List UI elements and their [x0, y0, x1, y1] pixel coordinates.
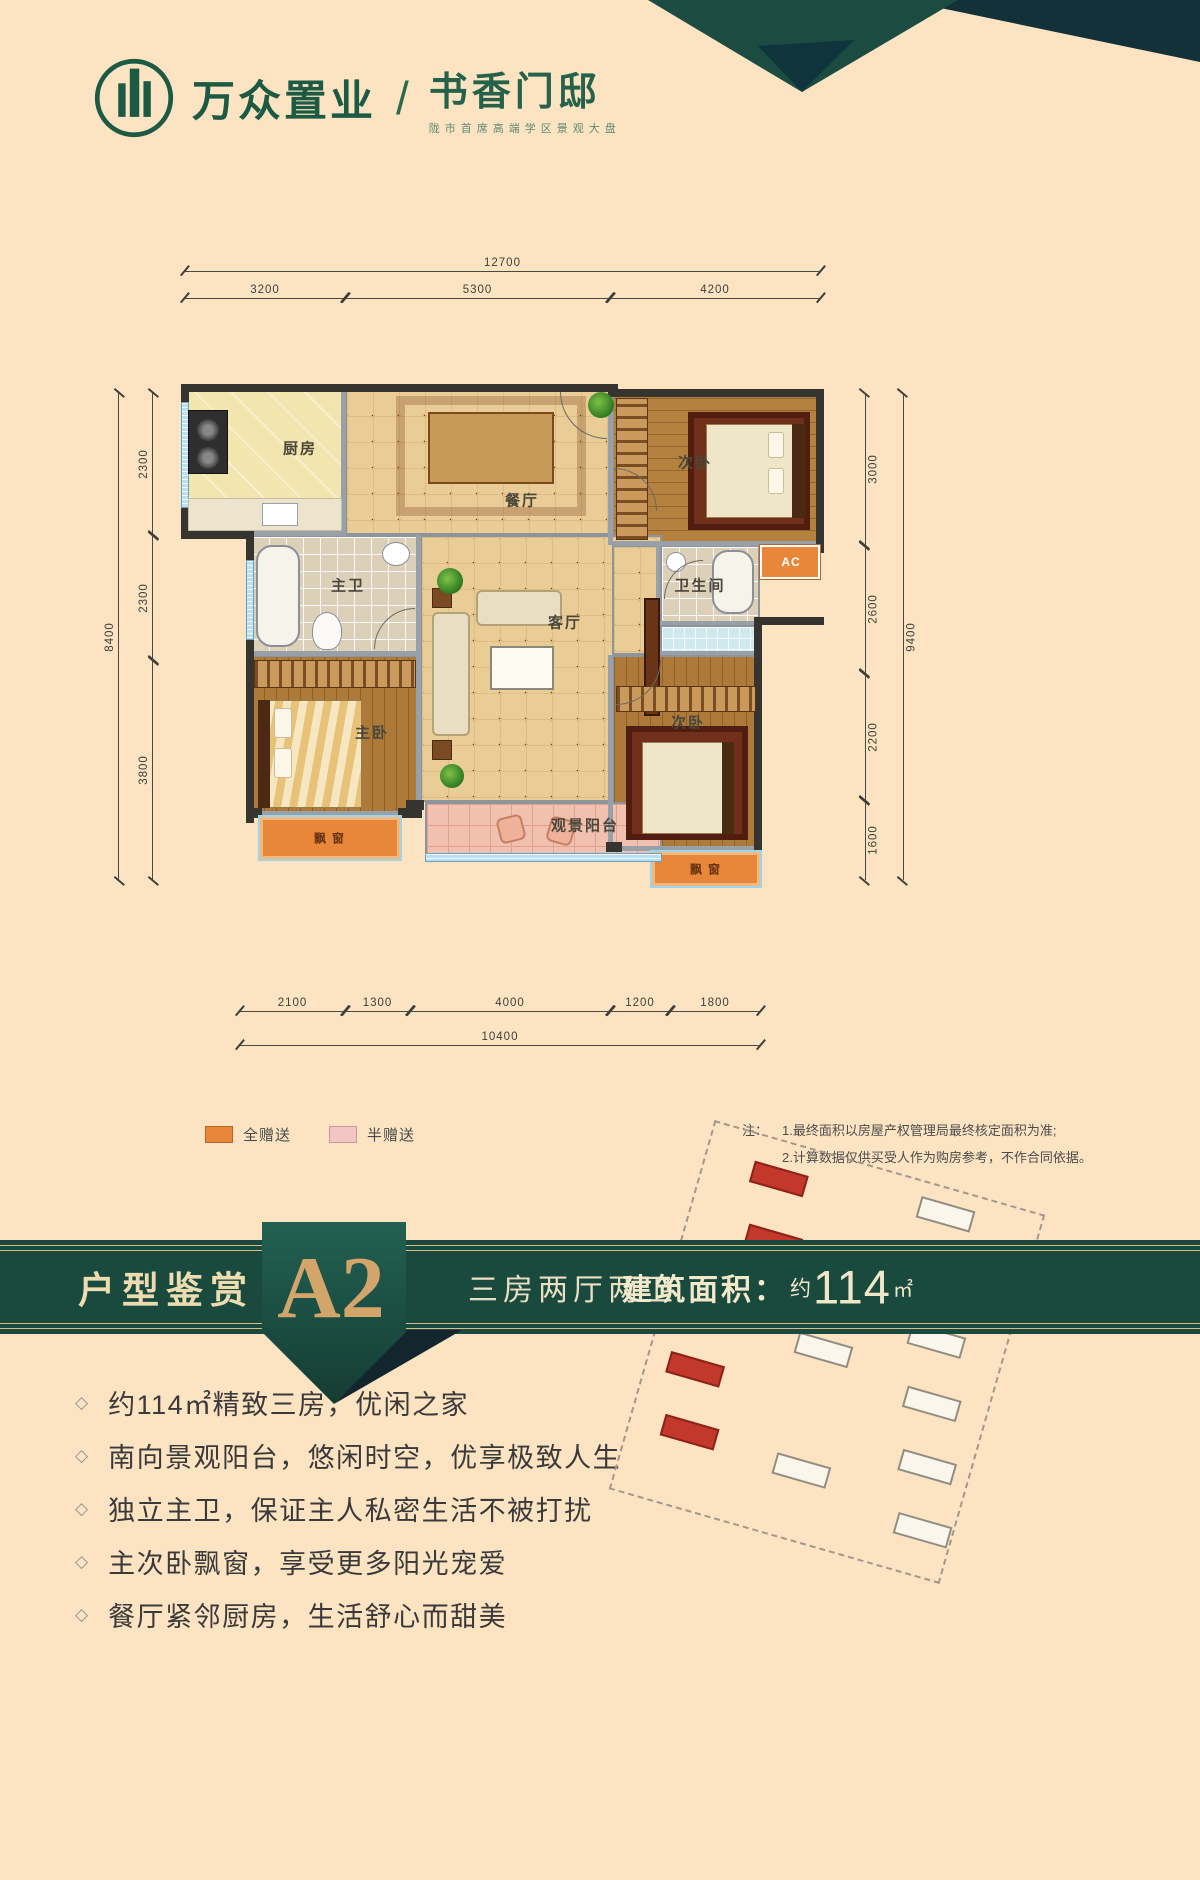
label-dining: 餐厅	[505, 490, 539, 511]
burner	[197, 419, 219, 441]
dim-bottom-seg: 1800	[670, 996, 760, 1012]
dim-bottom-seg: 1300	[345, 996, 410, 1012]
half-gift-label: 半赠送	[367, 1124, 415, 1145]
brand-project-name: 书香门邸	[429, 61, 621, 117]
dim-right-total: 9400	[888, 393, 904, 880]
brand-tagline: 陇市首席高端学区景观大盘	[429, 120, 621, 136]
pillow	[274, 748, 292, 778]
diamond-bullet-icon: ◇	[75, 1393, 88, 1413]
feature-list: ◇ 约114㎡精致三房，优闲之家 ◇ 南向景观阳台，悠闲时空，优享极致人生 ◇ …	[75, 1376, 621, 1641]
section-title: 户型鉴赏	[78, 1260, 254, 1314]
half-gift-swatch	[329, 1126, 357, 1143]
label-bathroom: 卫生间	[674, 575, 725, 596]
diamond-bullet-icon: ◇	[75, 1552, 88, 1572]
wall	[406, 800, 424, 810]
label-master-bedroom: 主卧	[355, 722, 389, 743]
dim-bottom-total: 10400	[240, 1030, 760, 1046]
pillow	[768, 432, 784, 458]
site-plan	[609, 1120, 1046, 1584]
partition	[416, 535, 421, 655]
dim-bottom-seg: 2100	[240, 996, 345, 1012]
area-number: 114	[813, 1260, 891, 1315]
legend-item-half-gift: 半赠送	[329, 1124, 415, 1145]
dim-top-total: 12700	[185, 256, 820, 272]
toilet-master	[312, 612, 342, 650]
feature-item: ◇ 南向景观阳台，悠闲时空，优享极致人生	[75, 1429, 621, 1482]
area-prefix: 约	[790, 1272, 811, 1302]
wall	[816, 389, 824, 553]
dim-bottom-seg: 4000	[410, 996, 610, 1012]
dim-top-seg: 3200	[185, 283, 345, 299]
dim-top-seg: 4200	[610, 283, 820, 299]
bed-bedroom-top	[706, 424, 806, 518]
label-bedroom-bottom: 次卧	[671, 712, 705, 733]
feature-text: 餐厅紧邻厨房，生活舒心而甜美	[108, 1595, 507, 1634]
window-balcony	[425, 853, 662, 862]
washbasin-master	[382, 542, 410, 566]
pillow	[274, 708, 292, 738]
poster-page: 万众置业 / 书香门邸 陇市首席高端学区景观大盘 12700 3200 5300…	[0, 0, 1200, 1880]
area-label: 建筑面积：	[622, 1265, 787, 1309]
dim-bottom-seg: 1200	[610, 996, 670, 1012]
dim-right-seg: 2200	[850, 673, 866, 800]
building	[902, 1386, 962, 1423]
dim-top-seg: 5300	[345, 283, 610, 299]
full-gift-label: 全赠送	[243, 1124, 291, 1145]
legend: 全赠送 半赠送	[205, 1124, 415, 1145]
coffee-table	[490, 646, 554, 690]
feature-item: ◇ 主次卧飘窗，享受更多阳光宠爱	[75, 1535, 621, 1588]
pillow	[768, 468, 784, 494]
label-balcony: 观景阳台	[551, 815, 619, 836]
burner	[197, 447, 219, 469]
bathtub-master	[256, 545, 300, 647]
label-ac: AC	[781, 555, 800, 569]
wall	[608, 389, 824, 397]
dining-table	[428, 412, 554, 484]
brand-project-block: 书香门邸 陇市首席高端学区景观大盘	[429, 61, 621, 136]
wall	[181, 384, 618, 392]
sofa-long	[432, 612, 470, 736]
label-bay-window-master: 飘窗	[314, 830, 350, 847]
dim-right-seg: 2600	[850, 545, 866, 673]
feature-text: 南向景观阳台，悠闲时空，优享极致人生	[108, 1436, 621, 1475]
partition	[608, 393, 613, 545]
label-kitchen: 厨房	[283, 438, 317, 459]
wall	[181, 531, 254, 539]
partition	[660, 651, 760, 655]
window-master-bath	[246, 560, 254, 640]
building	[893, 1512, 953, 1549]
brand-company-name: 万众置业	[192, 67, 376, 129]
headboard	[722, 742, 734, 834]
bed-bedroom-bottom	[642, 742, 734, 834]
feature-item: ◇ 餐厅紧邻厨房，生活舒心而甜美	[75, 1588, 621, 1641]
brand-header: 万众置业 / 书香门邸 陇市首席高端学区景观大盘	[92, 56, 621, 140]
plant	[440, 764, 464, 788]
area-value-group: 约 114 ㎡	[790, 1260, 913, 1315]
banner-band: 户型鉴赏 三房两厅两卫 建筑面积： 约 114 ㎡	[0, 1240, 1200, 1334]
label-bedroom-top: 次卧	[678, 452, 712, 473]
label-living: 客厅	[548, 612, 582, 633]
partition	[250, 651, 420, 656]
feature-text: 主次卧飘窗，享受更多阳光宠爱	[108, 1542, 507, 1581]
label-bay-window-second: 飘窗	[690, 861, 726, 878]
partition	[416, 655, 421, 815]
logo-icon	[92, 56, 176, 140]
stove	[188, 410, 228, 474]
diamond-bullet-icon: ◇	[75, 1499, 88, 1519]
wall	[754, 617, 824, 625]
building	[771, 1452, 831, 1489]
partition	[660, 621, 760, 625]
side-table	[432, 740, 452, 760]
kitchen-sink	[262, 503, 298, 526]
dim-right-seg: 1600	[850, 800, 866, 880]
building-highlighted	[660, 1414, 720, 1451]
wall	[606, 842, 622, 852]
full-gift-swatch	[205, 1126, 233, 1143]
dim-right-seg: 3000	[850, 393, 866, 545]
building-highlighted	[749, 1161, 809, 1198]
plant	[437, 568, 463, 594]
note-line-1: 1.最终面积以房屋产权管理局最终核定面积为准;	[782, 1120, 1092, 1139]
building-highlighted	[665, 1351, 725, 1388]
wardrobe-master	[254, 660, 416, 688]
building	[897, 1449, 957, 1486]
brand-divider: /	[396, 71, 409, 125]
headboard	[258, 700, 270, 808]
dim-left-seg: 3800	[152, 660, 168, 880]
feature-text: 独立主卫，保证主人私密生活不被打扰	[108, 1489, 593, 1528]
wall	[754, 617, 762, 856]
unit-code: A2	[262, 1234, 400, 1342]
dim-left-seg: 2300	[152, 393, 168, 535]
feature-item: ◇ 独立主卫，保证主人私密生活不被打扰	[75, 1482, 621, 1535]
diamond-bullet-icon: ◇	[75, 1446, 88, 1466]
legend-item-full-gift: 全赠送	[205, 1124, 291, 1145]
dim-left-total: 8400	[118, 393, 134, 880]
building	[916, 1196, 976, 1233]
headboard	[792, 424, 806, 518]
building	[793, 1332, 853, 1369]
label-master-bath: 主卫	[331, 575, 365, 596]
dim-left-seg: 2300	[152, 535, 168, 660]
area-unit: ㎡	[893, 1274, 913, 1303]
diamond-bullet-icon: ◇	[75, 1605, 88, 1625]
